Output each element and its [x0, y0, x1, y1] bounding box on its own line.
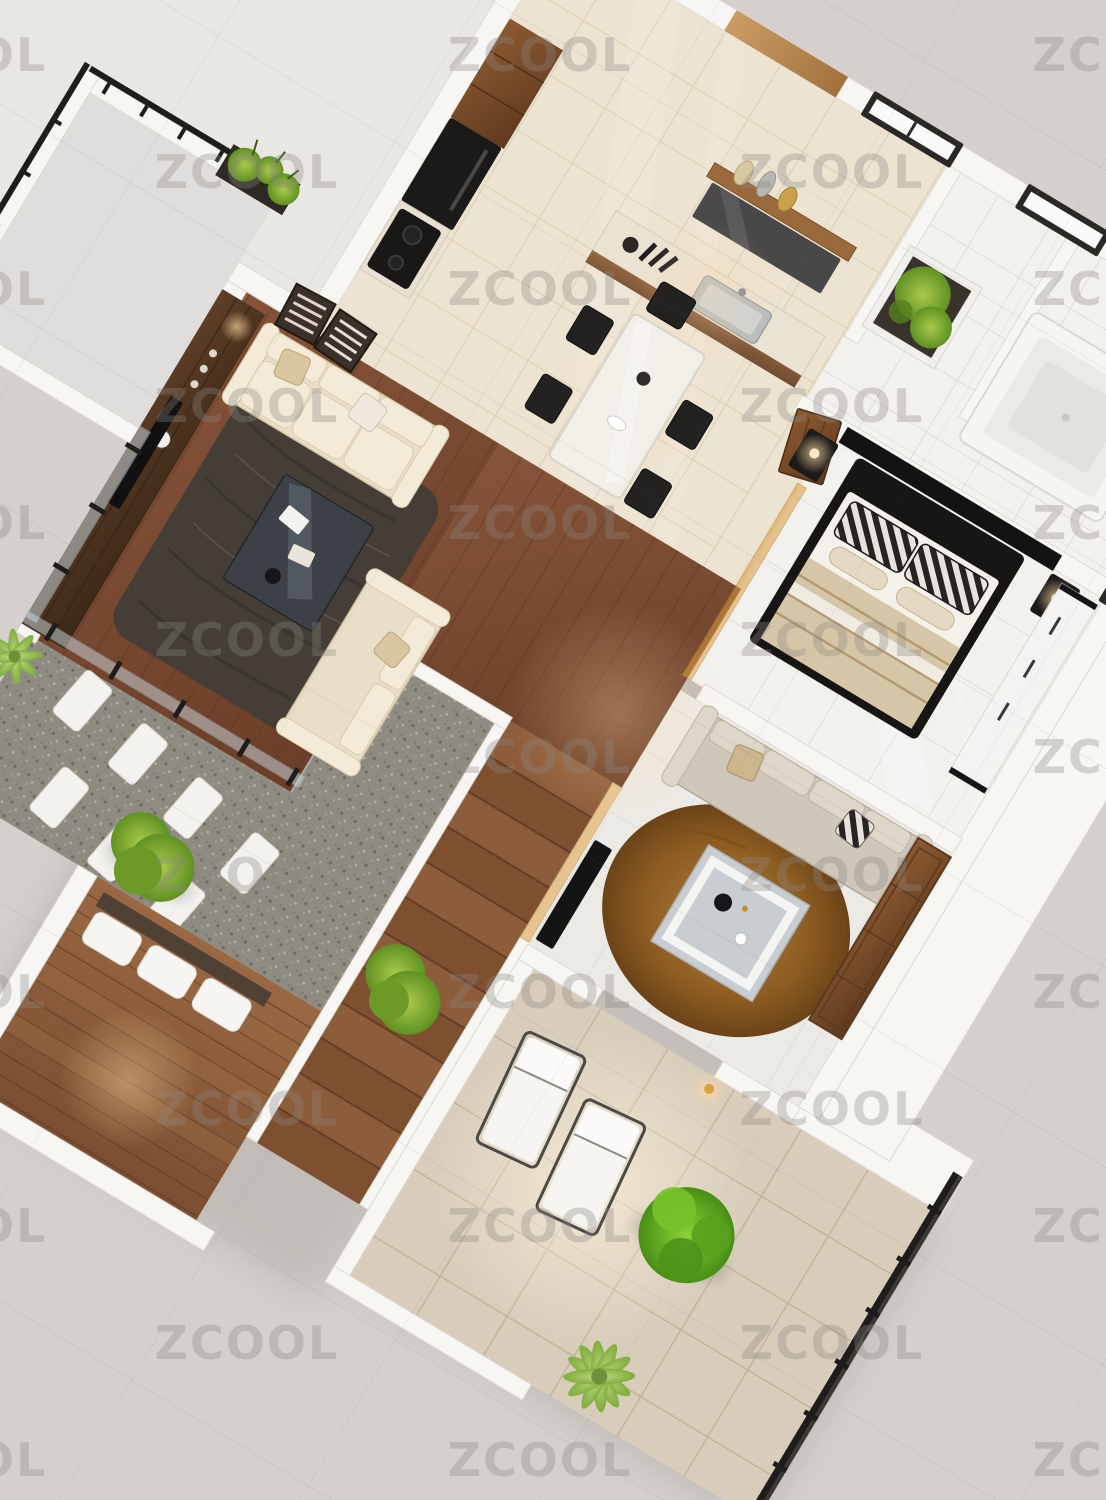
apartment-render: ZCOOL ZCOOL ZCOOL ZCOOL ZCOOL ZCOOL ZCOO… [0, 0, 1106, 1500]
floor-plan-scene [0, 0, 1106, 1500]
